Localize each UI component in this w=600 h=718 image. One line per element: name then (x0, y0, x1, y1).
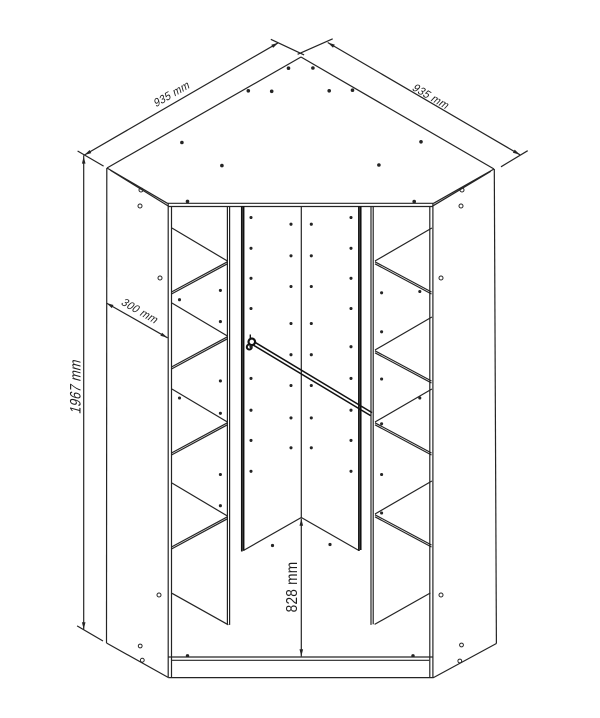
svg-text:1967 mm: 1967 mm (67, 357, 84, 415)
svg-text:828 mm: 828 mm (284, 562, 301, 613)
